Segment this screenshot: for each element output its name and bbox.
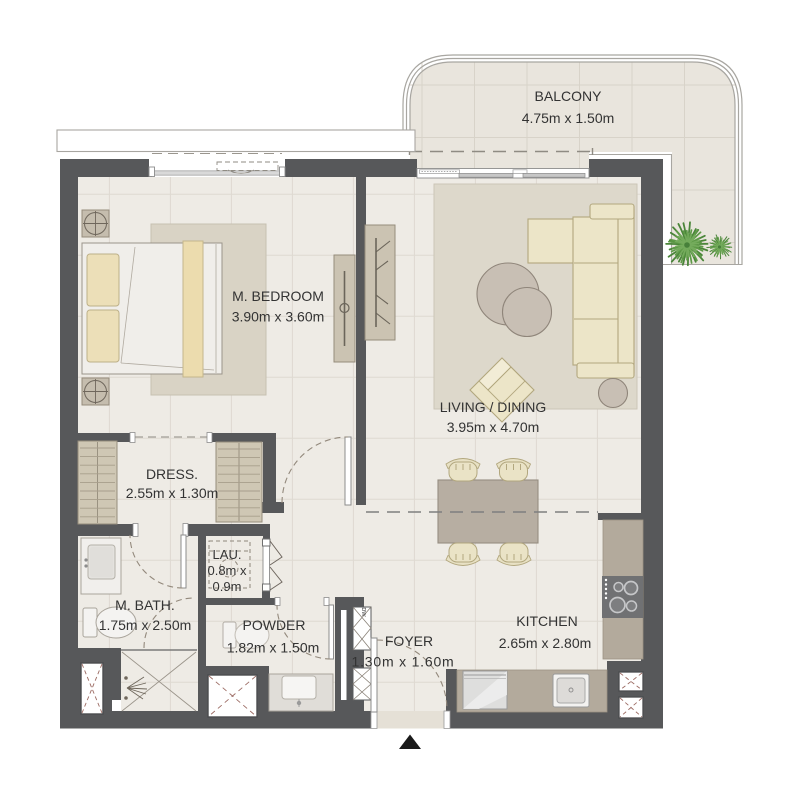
svg-text:0.9m: 0.9m: [213, 579, 242, 594]
svg-text:M. BEDROOM: M. BEDROOM: [232, 288, 324, 304]
svg-text:2.65m x 2.80m: 2.65m x 2.80m: [499, 635, 592, 651]
svg-text:3.90m x 3.60m: 3.90m x 3.60m: [232, 309, 325, 325]
svg-text:2.55m x 1.30m: 2.55m x 1.30m: [126, 485, 219, 501]
svg-text:4.75m x 1.50m: 4.75m x 1.50m: [522, 110, 615, 126]
svg-text:BALCONY: BALCONY: [535, 88, 603, 104]
svg-text:DW: DW: [360, 607, 366, 617]
svg-text:POWDER: POWDER: [243, 617, 306, 633]
svg-text:3.95m x 4.70m: 3.95m x 4.70m: [447, 419, 540, 435]
svg-text:LIVING / DINING: LIVING / DINING: [440, 399, 547, 415]
svg-text:LAU.: LAU.: [213, 547, 242, 562]
svg-text:M. BATH.: M. BATH.: [115, 597, 175, 613]
svg-text:DRESS.: DRESS.: [146, 466, 198, 482]
svg-text:1.30m x 1.60m: 1.30m x 1.60m: [352, 654, 455, 670]
svg-text:1.82m x 1.50m: 1.82m x 1.50m: [227, 640, 320, 656]
svg-text:FOYER: FOYER: [385, 633, 433, 649]
svg-text:1.75m x 2.50m: 1.75m x 2.50m: [99, 617, 192, 633]
svg-text:0.8m x: 0.8m x: [207, 563, 247, 578]
svg-text:KITCHEN: KITCHEN: [516, 613, 577, 629]
